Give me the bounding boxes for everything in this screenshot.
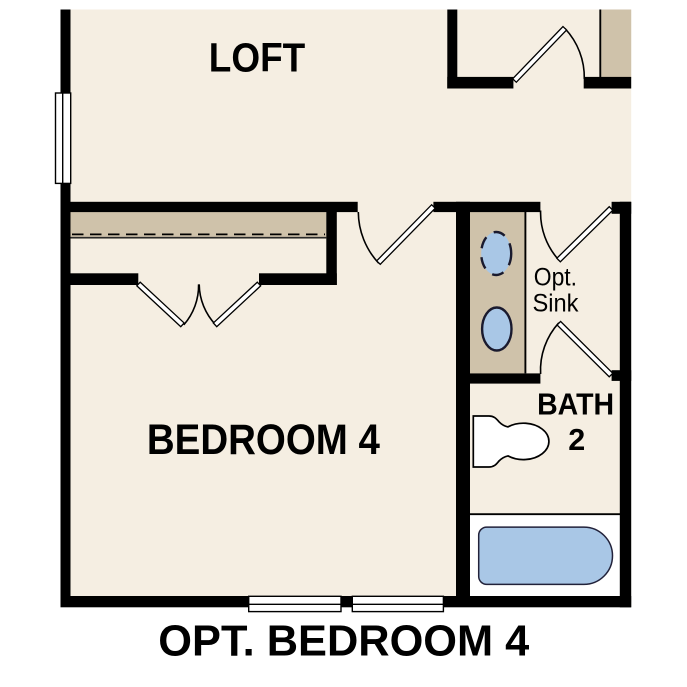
svg-text:BATH: BATH [537, 387, 614, 421]
svg-text:BEDROOM 4: BEDROOM 4 [147, 417, 380, 464]
svg-text:OPT. BEDROOM 4: OPT. BEDROOM 4 [158, 617, 530, 666]
svg-text:2: 2 [568, 423, 585, 457]
svg-text:Sink: Sink [533, 290, 579, 318]
svg-text:Opt.: Opt. [534, 263, 577, 291]
svg-text:LOFT: LOFT [209, 35, 306, 81]
